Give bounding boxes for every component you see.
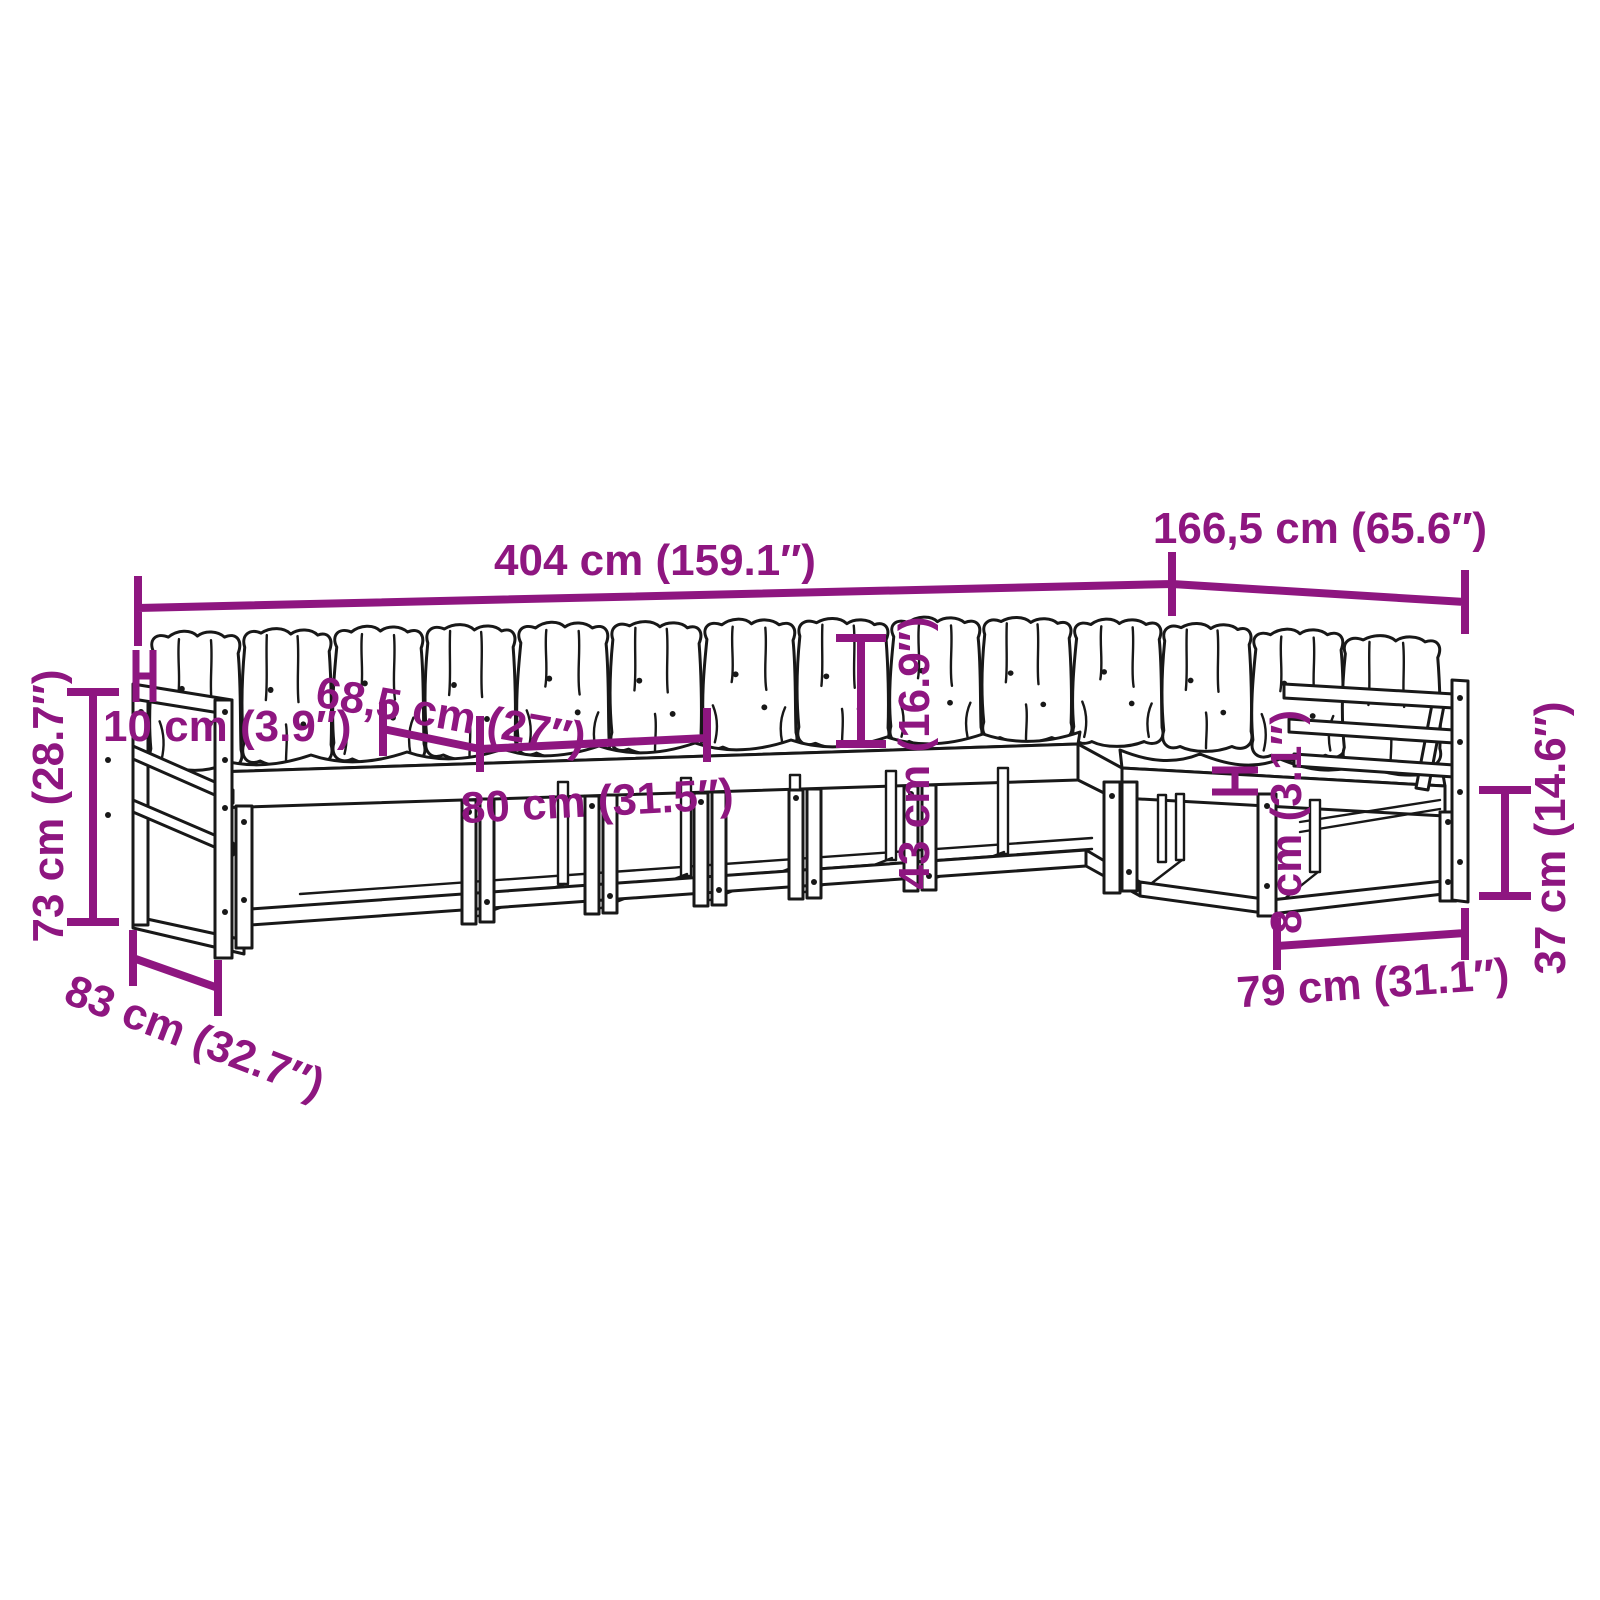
dim-label-seat-plank: 8 cm (3.1″) xyxy=(1262,710,1311,934)
cushion xyxy=(703,619,797,752)
dim-label-rail-width: 10 cm (3.9″) xyxy=(103,702,352,751)
sofa-dimension-diagram: 404 cm (159.1″) 166,5 cm (65.6″) 68,5 cm… xyxy=(0,0,1600,1600)
diagram-canvas: 404 cm (159.1″) 166,5 cm (65.6″) 68,5 cm… xyxy=(0,0,1600,1600)
dim-label-total-width: 404 cm (159.1″) xyxy=(494,536,816,585)
cushion xyxy=(1162,624,1252,752)
dim-label-backrest-height: 43 cm (16.9″) xyxy=(890,616,939,889)
floor-rail-wing-left xyxy=(1140,882,1271,914)
dim-label-seat-height: 37 cm (14.6″) xyxy=(1526,701,1575,974)
cushion xyxy=(610,622,702,755)
floor-rail-back-row xyxy=(236,850,1086,926)
dim-line-seat-height xyxy=(1479,790,1531,896)
cushion xyxy=(1073,619,1163,746)
dim-label-total-height: 73 cm (28.7″) xyxy=(24,669,73,942)
dim-label-right-depth: 166,5 cm (65.6″) xyxy=(1153,504,1487,553)
dim-label-left-module-depth: 83 cm (32.7″) xyxy=(58,966,330,1110)
cushion xyxy=(982,617,1072,742)
